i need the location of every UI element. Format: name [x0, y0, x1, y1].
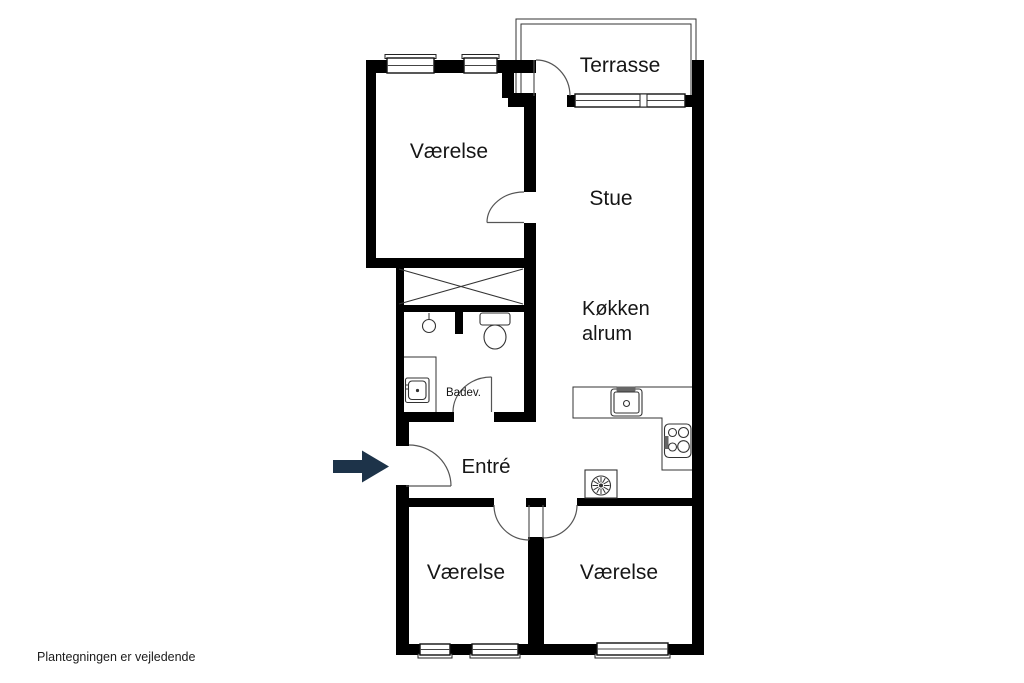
- footer-disclaimer: Plantegningen er vejledende: [37, 650, 196, 664]
- door-arc-vaerelse-top: [487, 192, 524, 223]
- room-label-vaerelse-bottom-left: Værelse: [427, 561, 505, 584]
- wall-right-vaerelse-upper: [502, 60, 514, 98]
- wall-main-upper: [524, 98, 536, 192]
- door-arc-bottom-left: [494, 505, 529, 540]
- room-label-stue: Stue: [589, 187, 632, 210]
- stove-icon: [665, 424, 692, 458]
- door-arc-terrace: [536, 60, 570, 96]
- wall-wardrobe-bottom: [396, 305, 536, 312]
- room-label-terrasse: Terrasse: [580, 54, 661, 77]
- entrance-arrow-icon: [333, 451, 389, 483]
- wall-left-lower: [396, 485, 409, 655]
- window-terrace-mullion: [640, 94, 647, 107]
- wall-right: [692, 60, 704, 655]
- toilet-icon: [480, 313, 510, 349]
- faucet-bar: [617, 387, 636, 392]
- wall-bath-bottom-right: [494, 412, 536, 422]
- floorplan-svg: Terrasse Værelse Stue Køkken alrum Badev…: [0, 0, 1024, 683]
- kitchen-sink-icon: [611, 387, 642, 417]
- wall-entre-bottom: [396, 498, 494, 507]
- room-label-koekken-line1: Køkken: [582, 298, 650, 320]
- stove-control-bar: [665, 436, 669, 449]
- wall-bath-partition: [455, 308, 463, 334]
- wall-entry-above-door: [396, 420, 409, 446]
- wardrobe-cross-icon: [399, 269, 523, 304]
- wall-bath-left: [396, 268, 404, 413]
- washing-machine-icon: [406, 378, 430, 403]
- wall-left-vaerelse: [366, 60, 376, 268]
- wall-vaerelse-bottom: [366, 258, 536, 268]
- room-label-badevaerelse: Badev.: [446, 387, 481, 399]
- wall-main-lower: [524, 223, 536, 413]
- room-label-vaerelse-bottom-right: Værelse: [580, 561, 658, 584]
- door-arc-entrance: [409, 445, 451, 486]
- extractor-fan-icon: [585, 470, 617, 498]
- floorplan-canvas: Terrasse Værelse Stue Køkken alrum Badev…: [0, 0, 1024, 683]
- wall-bottomright-top: [577, 498, 692, 506]
- kitchen-fixtures: [573, 387, 692, 499]
- room-label-koekken-line2: alrum: [582, 323, 632, 345]
- washbasin-icon: [423, 313, 436, 333]
- wall-between-bottom-rooms: [528, 537, 544, 645]
- door-arc-bottom-right: [543, 505, 577, 538]
- room-label-entre: Entré: [462, 455, 511, 478]
- room-label-vaerelse-top: Værelse: [410, 140, 488, 163]
